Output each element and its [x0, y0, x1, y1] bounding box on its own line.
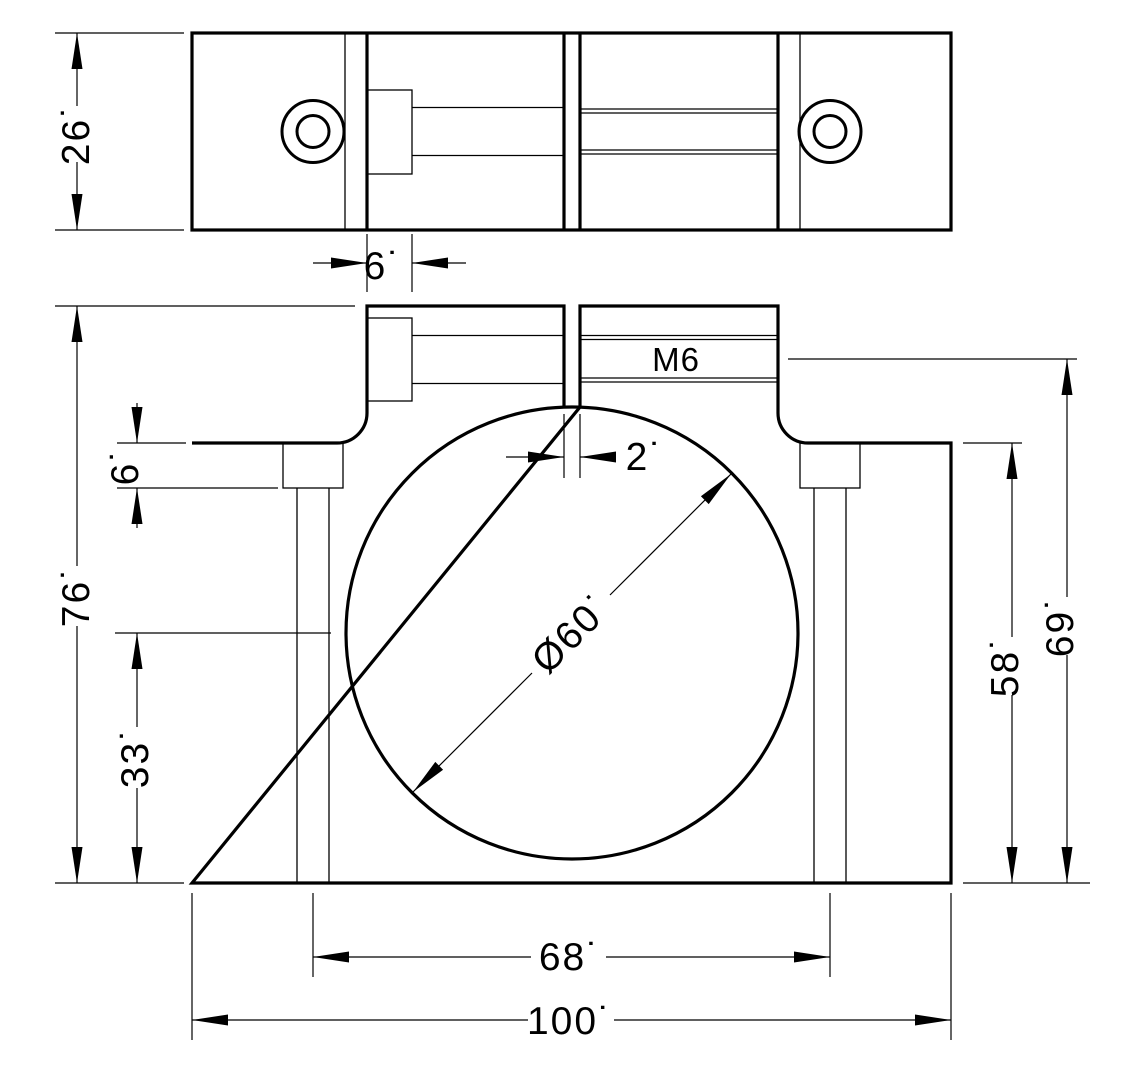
dim-screw-axis-height: 69˙ [788, 359, 1082, 883]
dim-hole-spacing: 68˙ [313, 893, 830, 979]
arrow-left-icon [580, 452, 616, 463]
top-view-mounting-holes [282, 101, 861, 163]
arrow-up-icon [72, 306, 83, 342]
arrow-down-icon [1007, 847, 1018, 883]
arrow-left-icon [412, 258, 448, 269]
right-hole-circle [814, 116, 846, 148]
engineering-drawing-canvas: 26˙ 6˙ [0, 0, 1142, 1070]
front-view-drawing: M6 76˙ 6˙ [55, 306, 1090, 1043]
top-view-hidden-and-tangent-lines [345, 33, 800, 230]
arrow-right-icon [528, 452, 564, 463]
dim-slot-width-label: 2˙ [626, 436, 665, 479]
arrow-up-icon [132, 633, 143, 669]
dim-bore-center-height: 33˙ [114, 633, 157, 883]
dim-base-counterbore-depth: 6˙ [104, 403, 278, 528]
dim-counterbore-depth: 6˙ [313, 234, 466, 292]
left-counterbore-circle [282, 101, 344, 163]
dim-bore-center-height-label: 33˙ [114, 726, 157, 788]
top-view-visible-edges [192, 33, 951, 230]
screw-head-counterbore-hidden [367, 318, 412, 401]
thread-callout-label: M6 [652, 341, 700, 378]
dim-hole-spacing-label: 68˙ [539, 936, 601, 979]
dim-base-cb-depth-label: 6˙ [104, 447, 147, 486]
arrow-down-icon [72, 194, 83, 230]
dim-top-view-height: 26˙ [55, 33, 184, 230]
front-view-outline [192, 306, 951, 883]
arrow-up-icon [1007, 443, 1018, 479]
arrow-up-icon [132, 488, 143, 524]
dim-bore-diameter: Ø60˙ [413, 474, 731, 792]
arrow-down-left-icon [413, 762, 443, 792]
top-view-drawing: 26˙ 6˙ [55, 33, 951, 292]
dim-shoulder-height: 58˙ [963, 443, 1090, 883]
arrow-up-icon [1062, 359, 1073, 395]
front-view-visible-edges [192, 306, 951, 883]
arrow-down-icon [72, 847, 83, 883]
screw-head-counterbore-outline [367, 90, 412, 174]
right-base-counterbore-hidden [800, 443, 860, 488]
arrow-up-icon [72, 33, 83, 69]
arrow-down-icon [1062, 847, 1073, 883]
arrow-right-icon [331, 258, 367, 269]
arrow-up-right-icon [701, 474, 731, 504]
dim-shoulder-height-label: 58˙ [984, 635, 1027, 697]
dim-top-height-label: 26˙ [55, 103, 98, 165]
arrow-left-icon [192, 1015, 228, 1026]
dim-screw-axis-height-label: 69˙ [1039, 595, 1082, 657]
dim-overall-width-label: 100˙ [527, 1000, 613, 1043]
dim-overall-height: 76˙ [55, 306, 355, 883]
arrow-down-icon [132, 847, 143, 883]
dim-counterbore-depth-label: 6˙ [364, 245, 403, 288]
dim-overall-height-label: 76˙ [55, 565, 98, 627]
top-view-outline [192, 33, 951, 230]
right-counterbore-circle [799, 101, 861, 163]
arrow-right-icon [915, 1015, 951, 1026]
left-hole-circle [297, 116, 329, 148]
dim-bore-diameter-label: Ø60˙ [524, 585, 621, 682]
arrow-right-icon [794, 952, 830, 963]
arrow-down-icon [132, 407, 143, 443]
arrow-left-icon [313, 952, 349, 963]
front-view-hidden-lines [115, 318, 860, 883]
drawing-sheet: 26˙ 6˙ [0, 0, 1142, 1070]
left-base-counterbore-hidden [283, 443, 343, 488]
